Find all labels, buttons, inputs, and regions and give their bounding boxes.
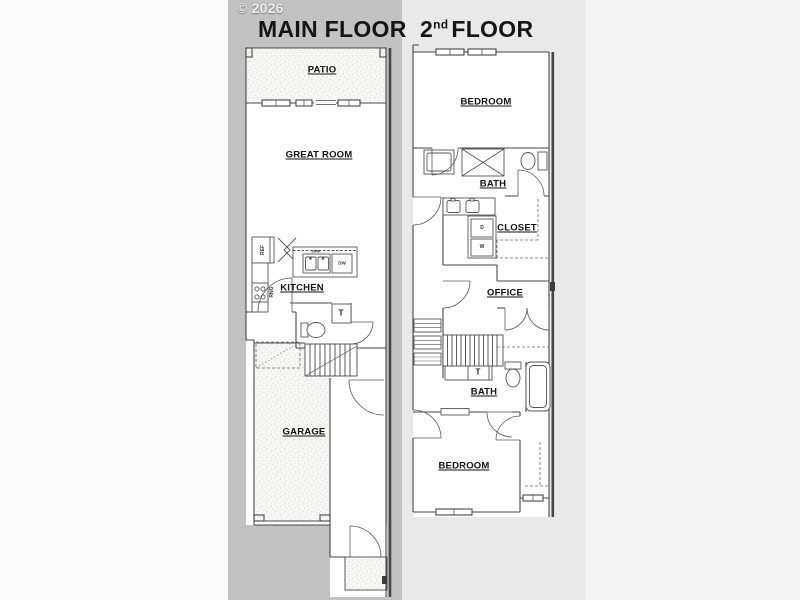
- sink-bowl-icon: [447, 201, 460, 213]
- garage-label: GARAGE: [283, 427, 326, 438]
- second-floor-title-number: 2: [420, 16, 433, 42]
- sink-label: SINK: [311, 249, 321, 254]
- toilet-tank-icon: [538, 152, 547, 170]
- closet-label: CLOSET: [497, 223, 537, 234]
- refrigerator-label: REF: [260, 245, 266, 255]
- second-floor-title-ordinal: nd: [433, 17, 448, 31]
- second-floor-title-word: FLOOR: [451, 16, 533, 42]
- toilet-bowl-icon: [521, 153, 535, 170]
- dishwasher-label: DW: [338, 261, 346, 266]
- second-interior: [413, 52, 549, 517]
- toilet-bowl-icon: [307, 323, 325, 338]
- patio-area: [247, 49, 385, 103]
- toilet-tank-icon: [505, 362, 521, 369]
- porch-post: [382, 576, 387, 584]
- floor-plan-image: © 2026 MAIN FLOOR 2ndFLOOR PATIO GREAT R…: [0, 0, 800, 600]
- floor-plan-drawing: [0, 0, 800, 600]
- bedroom-top-label: BEDROOM: [460, 97, 511, 108]
- bedroom-bottom-label: BEDROOM: [438, 461, 489, 472]
- toilet-bowl-icon: [506, 369, 520, 387]
- porch-area: [345, 557, 387, 590]
- copyright-watermark: © 2026: [237, 1, 284, 16]
- dryer-label: D: [480, 225, 484, 231]
- linen-shelves: [414, 319, 441, 365]
- bath-top-label: BATH: [480, 179, 506, 190]
- bath2-sink-label: T: [476, 368, 481, 377]
- office-label: OFFICE: [487, 288, 523, 299]
- patio-label: PATIO: [308, 65, 337, 76]
- great-room-label: GREAT ROOM: [286, 150, 353, 161]
- main-stairs-icon: [305, 344, 357, 376]
- powder-sink-label: T: [339, 309, 344, 318]
- second-floor-title: 2ndFLOOR: [420, 16, 533, 43]
- main-floor-title: MAIN FLOOR: [258, 16, 407, 43]
- bath-lower-label: BATH: [471, 387, 497, 398]
- second-stairs-icon: [443, 335, 503, 366]
- sink-bowl-icon: [466, 201, 479, 213]
- washer-label: W: [480, 244, 485, 250]
- range-label: RNG: [269, 286, 275, 297]
- pocket-door: [441, 409, 469, 416]
- kitchen-label: KITCHEN: [280, 283, 324, 294]
